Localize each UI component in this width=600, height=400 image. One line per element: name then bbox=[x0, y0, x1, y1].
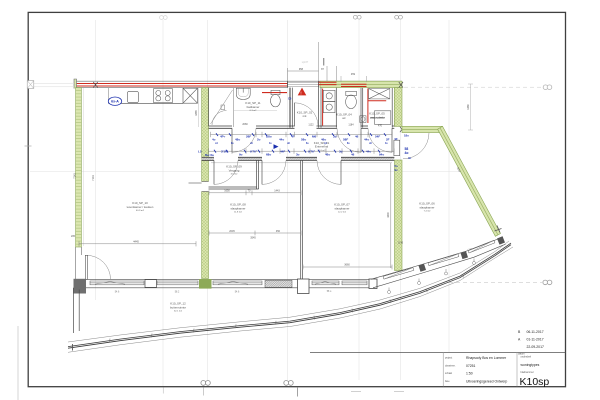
svg-text:46o: 46o bbox=[321, 138, 326, 142]
svg-text:C6: C6 bbox=[288, 97, 292, 101]
svg-text:buitenruimte: buitenruimte bbox=[170, 305, 186, 309]
svg-text:2o: 2o bbox=[257, 138, 261, 142]
svg-text:3660: 3660 bbox=[344, 264, 350, 267]
svg-text:9'76": 9'76" bbox=[308, 149, 316, 153]
svg-text:2045: 2045 bbox=[229, 230, 235, 233]
svg-text:project: project bbox=[445, 357, 453, 360]
svg-text:wasruimte: wasruimte bbox=[369, 115, 385, 119]
svg-text:459: 459 bbox=[351, 73, 356, 76]
svg-text:Vergang: Vergang bbox=[229, 168, 240, 172]
svg-text:68o: 68o bbox=[266, 152, 271, 156]
svg-text:slaapkamer: slaapkamer bbox=[420, 205, 435, 209]
svg-text:wc: wc bbox=[342, 116, 346, 120]
svg-text:woningtypes: woningtypes bbox=[521, 363, 540, 367]
svg-text:schaal: schaal bbox=[445, 372, 452, 375]
svg-text:bladnummer: bladnummer bbox=[521, 371, 534, 374]
svg-text:1650: 1650 bbox=[224, 190, 230, 193]
svg-text:1443: 1443 bbox=[274, 190, 280, 193]
svg-text:44o: 44o bbox=[279, 138, 284, 142]
svg-text:9F: 9F bbox=[395, 137, 399, 141]
svg-text:2080: 2080 bbox=[242, 123, 248, 126]
svg-text:1184: 1184 bbox=[348, 123, 354, 126]
svg-text:58o: 58o bbox=[301, 138, 306, 142]
svg-text:9o: 9o bbox=[239, 152, 243, 156]
svg-text:6x-A: 6x-A bbox=[111, 100, 119, 104]
svg-text:4445: 4445 bbox=[133, 239, 139, 243]
svg-text:46: 46 bbox=[355, 134, 359, 138]
svg-text:slaapkamer: slaapkamer bbox=[231, 206, 246, 210]
svg-text:1122: 1122 bbox=[308, 123, 314, 126]
svg-text:D8o: D8o bbox=[266, 134, 272, 138]
svg-text:22-09-2017: 22-09-2017 bbox=[527, 345, 544, 349]
svg-text:1885: 1885 bbox=[195, 110, 198, 116]
svg-text:L5: L5 bbox=[198, 149, 202, 153]
svg-text:07251: 07251 bbox=[466, 364, 476, 368]
svg-text:94o: 94o bbox=[379, 152, 384, 156]
svg-text:54.6: 54.6 bbox=[235, 292, 240, 294]
svg-text:958: 958 bbox=[299, 68, 304, 71]
svg-text:46: 46 bbox=[351, 152, 355, 156]
svg-text:4P+: 4P+ bbox=[220, 134, 226, 138]
svg-text:2F: 2F bbox=[386, 138, 390, 142]
svg-text:450: 450 bbox=[276, 230, 281, 233]
svg-text:44o: 44o bbox=[364, 138, 369, 142]
svg-text:K10sp: K10sp bbox=[520, 376, 550, 388]
svg-text:44F: 44F bbox=[280, 149, 285, 153]
svg-text:!: ! bbox=[300, 91, 301, 96]
svg-text:9s: 9s bbox=[395, 168, 399, 172]
svg-text:26F: 26F bbox=[246, 134, 251, 138]
svg-text:mk: mk bbox=[303, 114, 307, 118]
svg-text:woonkamer / keuken: woonkamer / keuken bbox=[127, 205, 154, 209]
svg-text:3o: 3o bbox=[408, 156, 412, 160]
svg-text:06-11-2017: 06-11-2017 bbox=[527, 330, 544, 334]
svg-text:badkamer: badkamer bbox=[247, 105, 260, 109]
svg-text:fase: fase bbox=[445, 380, 450, 383]
svg-text:spl 87: spl 87 bbox=[302, 61, 309, 64]
svg-text:58 o: 58 o bbox=[327, 291, 332, 293]
svg-text:9'76": 9'76" bbox=[250, 149, 258, 153]
svg-text:54F: 54F bbox=[375, 134, 380, 138]
svg-text:4400: 4400 bbox=[387, 212, 390, 218]
svg-text:18o: 18o bbox=[404, 134, 409, 138]
svg-text:onderdeel: onderdeel bbox=[521, 356, 532, 359]
svg-text:1140: 1140 bbox=[398, 242, 404, 245]
svg-text:58F: 58F bbox=[343, 138, 348, 142]
svg-text:3d: 3d bbox=[339, 149, 343, 153]
svg-text:4o: 4o bbox=[405, 151, 409, 155]
svg-text:Uitvoeringsgereed Ontwerp: Uitvoeringsgereed Ontwerp bbox=[466, 379, 507, 383]
svg-text:58.2: 58.2 bbox=[175, 292, 180, 294]
svg-text:Rhapsody Bos en Lommer: Rhapsody Bos en Lommer bbox=[466, 356, 507, 360]
svg-text:6.3 m2: 6.3 m2 bbox=[250, 110, 257, 112]
svg-text:12.2 m2: 12.2 m2 bbox=[338, 212, 347, 214]
svg-text:48o: 48o bbox=[235, 138, 240, 142]
svg-text:1480: 1480 bbox=[467, 104, 470, 110]
svg-text:01-11-2017: 01-11-2017 bbox=[527, 337, 544, 341]
svg-text:40.9 m2: 40.9 m2 bbox=[136, 210, 145, 212]
svg-text:Rw 6a: Rw 6a bbox=[205, 153, 214, 157]
svg-text:3.6 m2: 3.6 m2 bbox=[231, 174, 238, 176]
svg-text:M6: M6 bbox=[312, 134, 316, 138]
svg-text:470: 470 bbox=[378, 125, 383, 128]
svg-text:11.8 m2: 11.8 m2 bbox=[234, 212, 243, 214]
svg-text:54.6: 54.6 bbox=[115, 292, 120, 294]
svg-text:dossiernr.: dossiernr. bbox=[445, 365, 456, 368]
svg-text:slaapkamer: slaapkamer bbox=[335, 206, 350, 210]
svg-text:7.4 m2: 7.4 m2 bbox=[424, 211, 431, 213]
svg-text:3545: 3545 bbox=[250, 236, 256, 239]
svg-text:4o: 4o bbox=[212, 138, 216, 142]
svg-text:1:50: 1:50 bbox=[466, 372, 473, 376]
svg-text:46o: 46o bbox=[325, 152, 330, 156]
svg-text:7141: 7141 bbox=[91, 175, 95, 181]
svg-text:32.1 m2: 32.1 m2 bbox=[174, 311, 183, 313]
svg-text:3o: 3o bbox=[296, 152, 300, 156]
svg-text:205: 205 bbox=[71, 235, 76, 238]
svg-text:Entree/hal: Entree/hal bbox=[315, 145, 329, 149]
svg-text:44o: 44o bbox=[366, 149, 371, 153]
svg-text:7141: 7141 bbox=[74, 173, 77, 179]
